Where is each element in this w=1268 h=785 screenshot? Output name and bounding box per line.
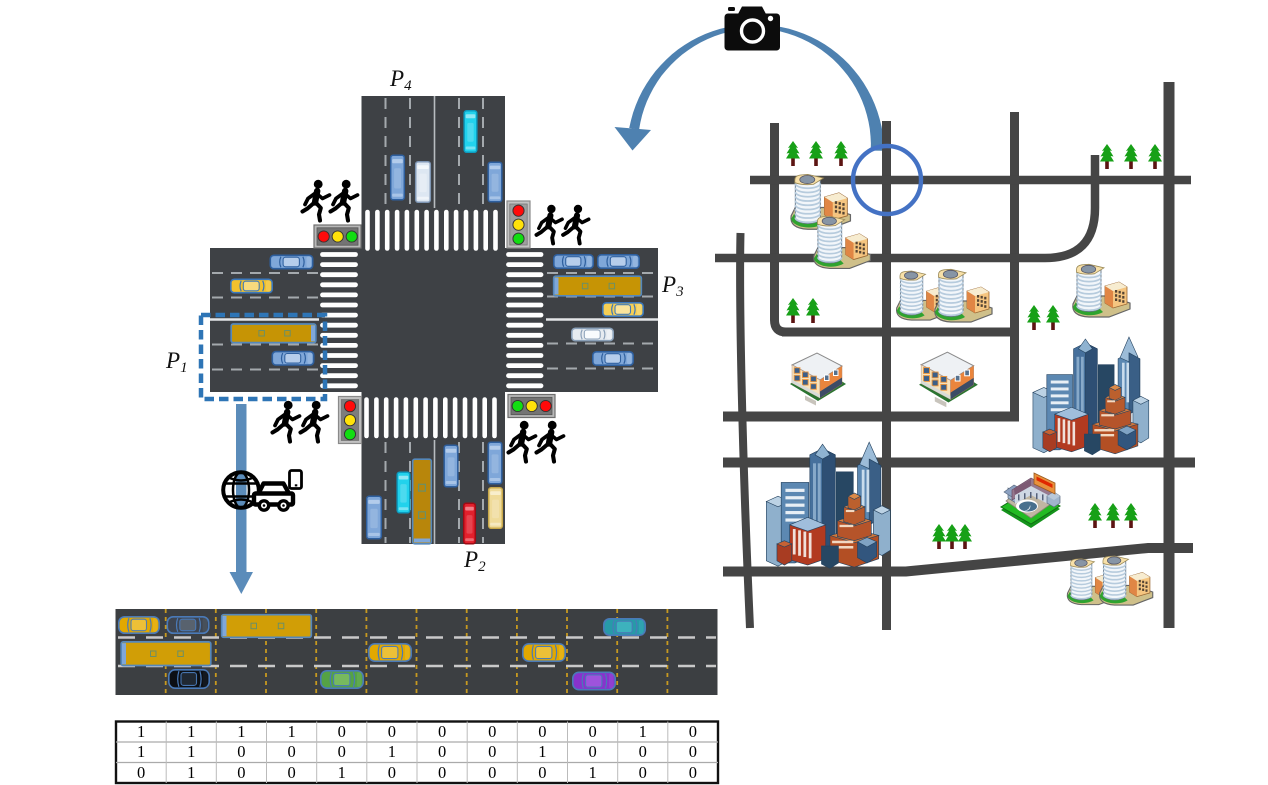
svg-text:0: 0 [538,763,546,782]
svg-text:0: 0 [488,763,496,782]
svg-text:0: 0 [287,763,295,782]
svg-text:0: 0 [388,763,396,782]
svg-text:P1: P1 [165,348,188,376]
svg-text:1: 1 [187,722,195,741]
svg-text:0: 0 [438,742,446,761]
svg-text:1: 1 [187,763,195,782]
svg-text:0: 0 [338,742,346,761]
svg-text:0: 0 [488,742,496,761]
svg-text:0: 0 [639,763,647,782]
svg-text:P4: P4 [389,66,412,94]
svg-text:0: 0 [588,722,596,741]
svg-text:0: 0 [488,722,496,741]
svg-text:0: 0 [588,742,596,761]
svg-text:1: 1 [588,763,596,782]
svg-text:1: 1 [237,722,245,741]
svg-text:0: 0 [237,763,245,782]
svg-text:P3: P3 [661,272,684,300]
svg-text:0: 0 [689,763,697,782]
svg-text:0: 0 [639,742,647,761]
svg-text:1: 1 [137,722,145,741]
svg-text:0: 0 [689,742,697,761]
svg-text:1: 1 [388,742,396,761]
svg-text:1: 1 [287,722,295,741]
svg-text:1: 1 [538,742,546,761]
svg-text:0: 0 [287,742,295,761]
svg-text:0: 0 [388,722,396,741]
svg-text:1: 1 [338,763,346,782]
svg-text:1: 1 [137,742,145,761]
svg-text:0: 0 [438,763,446,782]
svg-text:1: 1 [639,722,647,741]
svg-text:0: 0 [438,722,446,741]
svg-text:P2: P2 [463,547,486,575]
svg-text:0: 0 [538,722,546,741]
svg-text:0: 0 [689,722,697,741]
svg-text:1: 1 [187,742,195,761]
svg-text:0: 0 [338,722,346,741]
svg-text:0: 0 [237,742,245,761]
svg-text:0: 0 [137,763,145,782]
